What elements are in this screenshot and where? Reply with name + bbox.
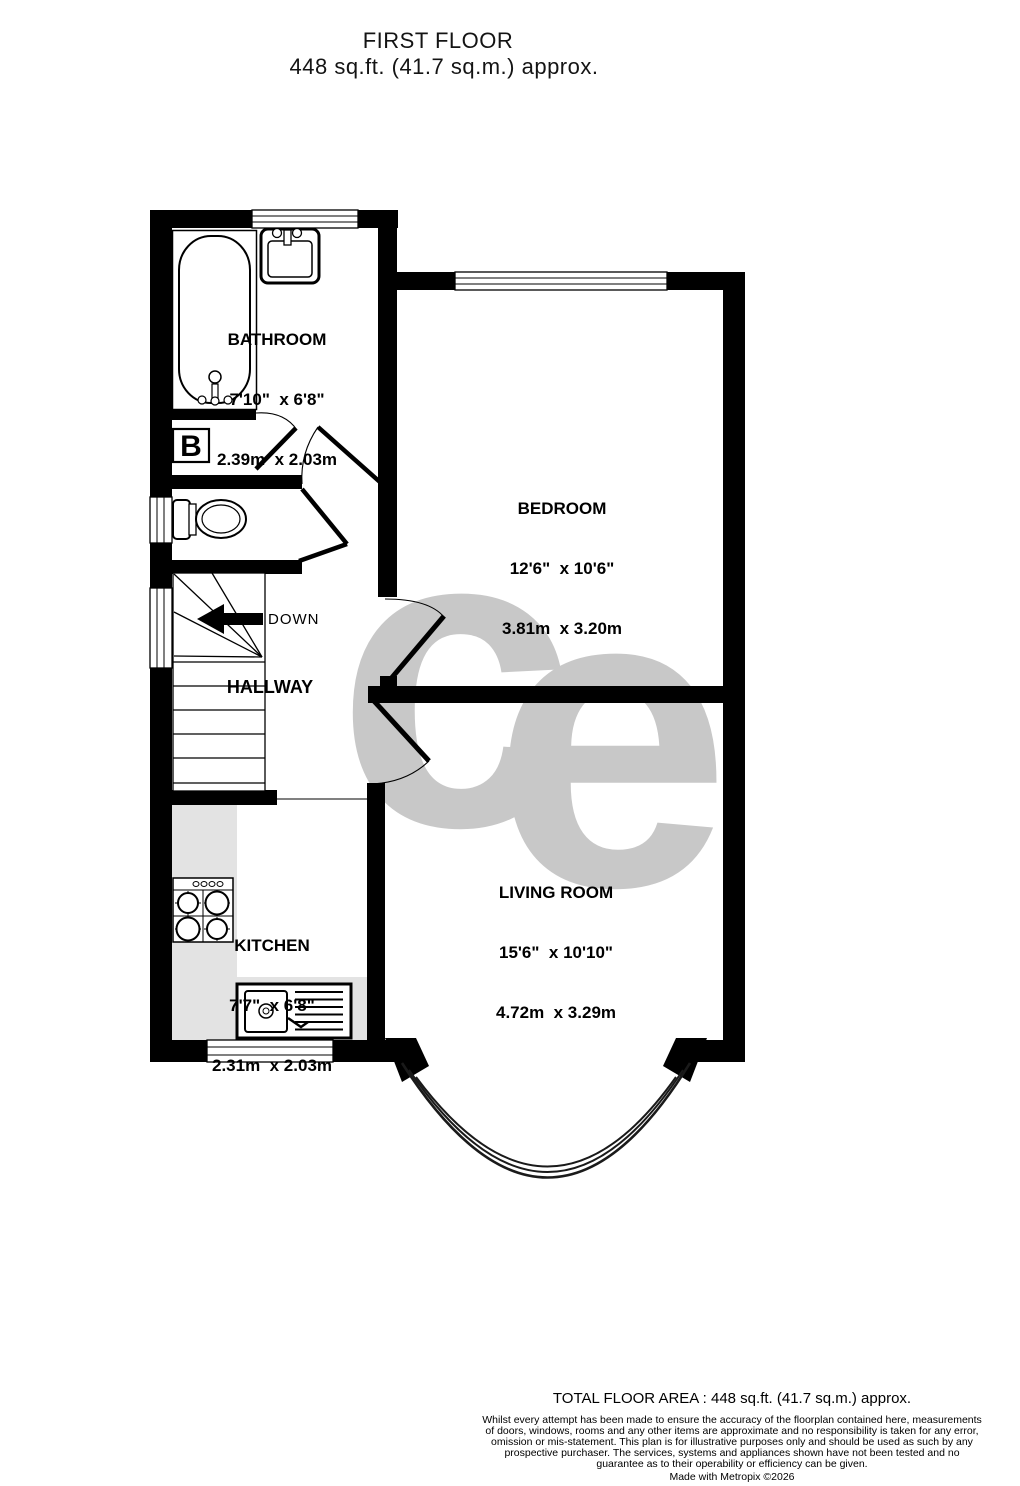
bedroom-door <box>385 599 444 681</box>
footer: TOTAL FLOOR AREA : 448 sq.ft. (41.7 sq.m… <box>482 1390 982 1483</box>
kitchen-label: KITCHEN 7'7" x 6'8" 2.31m x 2.03m <box>212 896 332 1116</box>
room-name: BATHROOM <box>217 330 337 350</box>
wc-window <box>150 497 172 543</box>
bathroom-sink <box>261 229 319 284</box>
living-room-label: LIVING ROOM 15'6" x 10'10" 4.72m x 3.29m <box>496 843 616 1063</box>
metropix-credit: Made with Metropix ©2026 <box>482 1471 982 1483</box>
room-name: LIVING ROOM <box>496 883 616 903</box>
room-dims-imperial: 15'6" x 10'10" <box>496 943 616 963</box>
floorplan-drawing: B <box>0 0 1020 1486</box>
total-floor-area: TOTAL FLOOR AREA : 448 sq.ft. (41.7 sq.m… <box>482 1390 982 1407</box>
bedroom-label: BEDROOM 12'6" x 10'6" 3.81m x 3.20m <box>502 459 622 679</box>
room-dims-metric: 3.81m x 3.20m <box>502 619 622 639</box>
boiler-label: B <box>180 430 202 463</box>
room-dims-imperial: 7'10" x 6'8" <box>217 390 337 410</box>
disclaimer-text: Whilst every attempt has been made to en… <box>482 1415 982 1470</box>
room-dims-imperial: 7'7" x 6'8" <box>212 996 332 1016</box>
boiler-cupboard: B <box>173 429 209 463</box>
bay-window <box>402 1063 690 1178</box>
room-dims-metric: 2.39m x 2.03m <box>217 450 337 470</box>
room-dims-metric: 4.72m x 3.29m <box>496 1003 616 1023</box>
room-name: KITCHEN <box>212 936 332 956</box>
room-dims-metric: 2.31m x 2.03m <box>212 1056 332 1076</box>
floorplan-page: FIRST FLOOR 448 sq.ft. (41.7 sq.m.) appr… <box>0 0 1020 1486</box>
bathroom-window <box>252 210 358 228</box>
down-label: DOWN <box>268 611 320 628</box>
hallway-window <box>150 588 172 668</box>
bathroom-label: BATHROOM 7'10" x 6'8" 2.39m x 2.03m <box>217 290 337 510</box>
room-name: BEDROOM <box>502 499 622 519</box>
bedroom-window <box>455 272 667 290</box>
room-dims-imperial: 12'6" x 10'6" <box>502 559 622 579</box>
living-room-door <box>370 701 429 784</box>
hallway-label: HALLWAY <box>227 677 313 698</box>
